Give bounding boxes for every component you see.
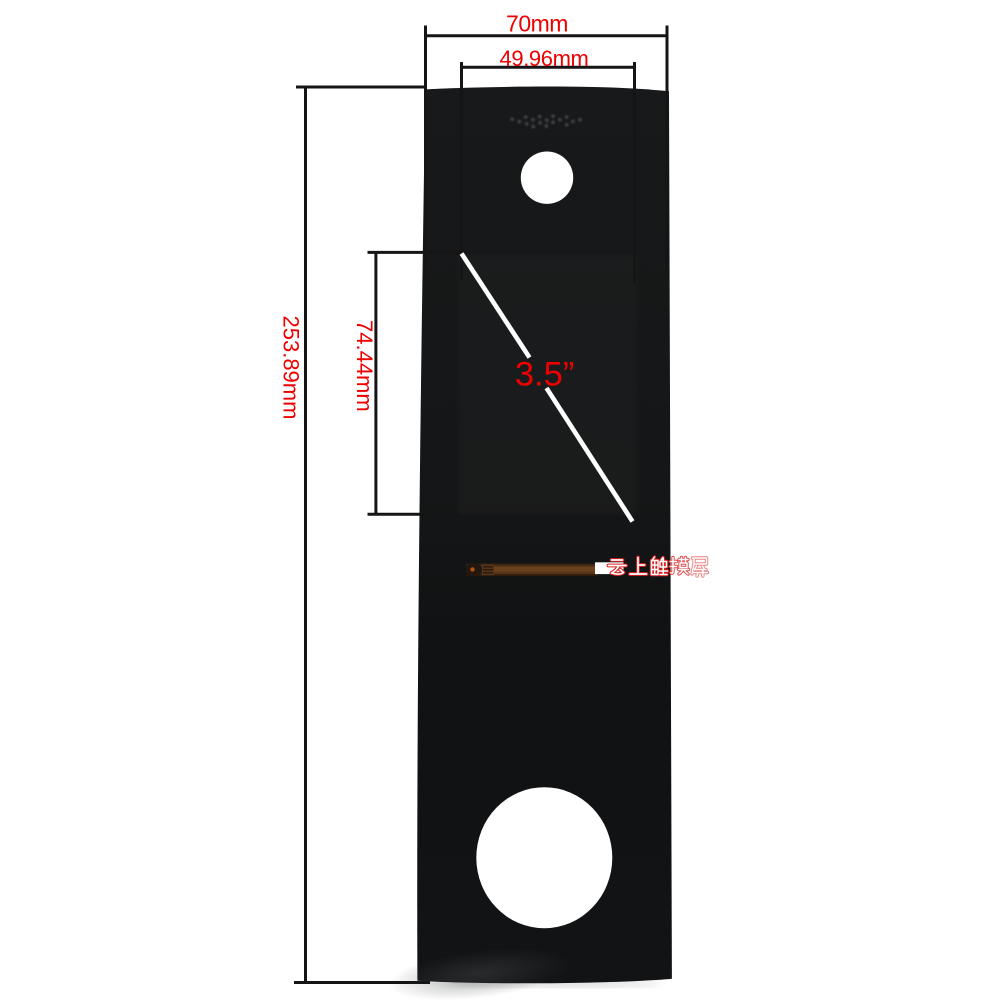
svg-text:3.5”: 3.5” — [515, 356, 574, 394]
svg-text:49.96mm: 49.96mm — [500, 46, 589, 71]
svg-text:70mm: 70mm — [506, 11, 568, 37]
svg-text:74.44mm: 74.44mm — [352, 320, 377, 412]
svg-text:253.89mm: 253.89mm — [279, 316, 304, 420]
